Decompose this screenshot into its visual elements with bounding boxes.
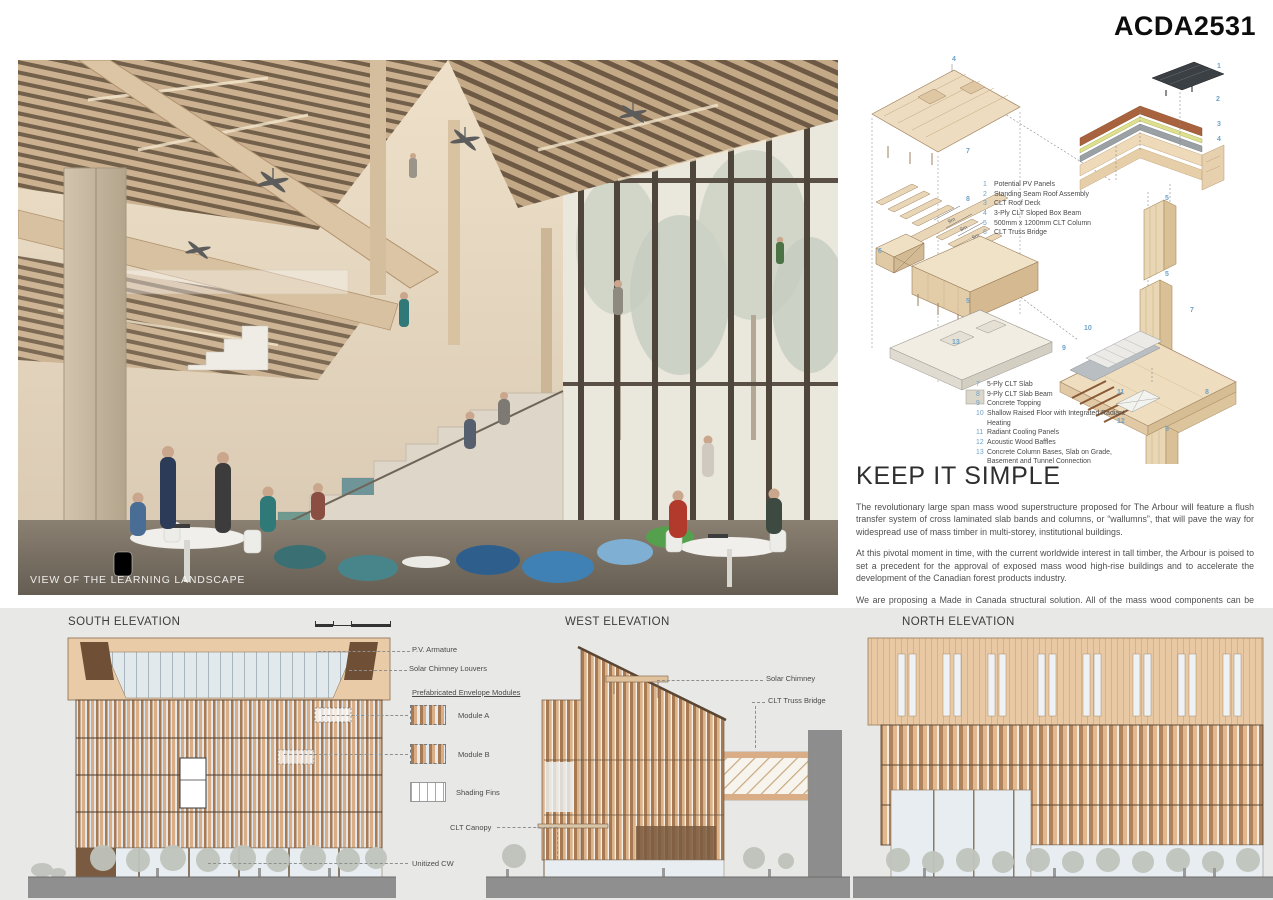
leader-line: [284, 754, 408, 755]
callout-number: 5: [966, 298, 970, 305]
article-paragraph: At this pivotal moment in time, with the…: [856, 547, 1254, 584]
annotation-module-a: Module A: [458, 711, 489, 720]
article-title: KEEP IT SIMPLE: [856, 462, 1254, 491]
axo-legend-roof: 1Potential PV Panels 2Standing Seam Roof…: [983, 180, 1113, 238]
legend-item: 1Potential PV Panels: [983, 180, 1113, 190]
annotation-pv-armature: P.V. Armature: [412, 645, 457, 654]
scale-bar: [313, 620, 393, 629]
leader-line: [557, 827, 558, 859]
annotation-solar-chimney-louvers: Solar Chimney Louvers: [409, 664, 487, 673]
shading-fins-swatch: [410, 782, 446, 802]
board-id: ACDA2531: [1114, 11, 1256, 42]
callout-number: 1: [1217, 63, 1221, 70]
callout-number: 12: [1117, 418, 1125, 425]
callout-number: 11: [1117, 389, 1124, 396]
annotation-clt-canopy: CLT Canopy: [450, 823, 491, 832]
callout-number: 5: [1165, 195, 1169, 202]
presentation-board: ACDA2531: [0, 0, 1273, 900]
north-elevation-title: NORTH ELEVATION: [902, 616, 1015, 628]
module-b-swatch: [410, 744, 446, 764]
leader-line: [755, 706, 756, 748]
annotation-shading-fins: Shading Fins: [456, 788, 500, 797]
callout-number: 5: [1165, 426, 1169, 433]
legend-item: 5500mm x 1200mm CLT Column: [983, 219, 1113, 229]
callout-number: 13: [952, 339, 960, 346]
callout-number: 8: [1205, 389, 1209, 396]
west-elevation-title: WEST ELEVATION: [565, 616, 670, 628]
legend-item: 2Standing Seam Roof Assembly: [983, 190, 1113, 200]
article-paragraph: The revolutionary large span mass wood s…: [856, 501, 1254, 538]
legend-item: 3CLT Roof Deck: [983, 199, 1113, 209]
elevations-strip: SOUTH ELEVATION WEST ELEVATION NORTH ELE…: [0, 608, 1273, 900]
annotation-solar-chimney: Solar Chimney: [766, 674, 815, 683]
callout-number: 4: [1217, 136, 1221, 143]
callout-number: 6: [878, 248, 882, 255]
legend-item: 6CLT Truss Bridge: [983, 228, 1113, 238]
legend-item: 9Concrete Topping: [976, 399, 1144, 409]
annotation-clt-truss-bridge: CLT Truss Bridge: [768, 696, 826, 705]
callout-number: 3: [1217, 121, 1221, 128]
callout-number: 4: [952, 56, 956, 63]
render-illustration: [18, 60, 838, 595]
west-elevation-drawing: [486, 630, 850, 898]
callout-number: 8: [966, 196, 970, 203]
south-elevation-drawing: [28, 630, 396, 898]
legend-item: 43-Ply CLT Sloped Box Beam: [983, 209, 1113, 219]
north-elevation-drawing: [853, 630, 1273, 898]
module-a-swatch: [410, 705, 446, 725]
leader-line: [318, 651, 410, 652]
callout-number: 9: [1062, 345, 1066, 352]
annotation-unitized-cw: Unitized CW: [412, 859, 454, 868]
callout-number: 10: [1084, 325, 1092, 332]
callout-number: 5: [1165, 271, 1169, 278]
render-caption: VIEW OF THE LEARNING LANDSCAPE: [30, 574, 245, 586]
leader-line: [208, 863, 408, 864]
structural-axonometric-diagram: 1Potential PV Panels 2Standing Seam Roof…: [848, 52, 1260, 464]
leader-line: [497, 827, 557, 828]
callout-number: 7: [1190, 307, 1194, 314]
learning-landscape-render: VIEW OF THE LEARNING LANDSCAPE: [18, 60, 838, 595]
callout-number: 2: [1216, 96, 1220, 103]
annotation-module-b: Module B: [458, 750, 490, 759]
leader-line: [752, 702, 765, 703]
leader-line: [657, 680, 763, 681]
leader-line: [322, 715, 408, 716]
legend-item: 12Acoustic Wood Baffles: [976, 438, 1144, 448]
callout-number: 7: [966, 148, 970, 155]
annotation-modules-heading: Prefabricated Envelope Modules: [412, 688, 520, 697]
south-elevation-title: SOUTH ELEVATION: [68, 616, 180, 628]
legend-item: 11Radiant Cooling Panels: [976, 428, 1144, 438]
leader-line: [349, 670, 407, 671]
